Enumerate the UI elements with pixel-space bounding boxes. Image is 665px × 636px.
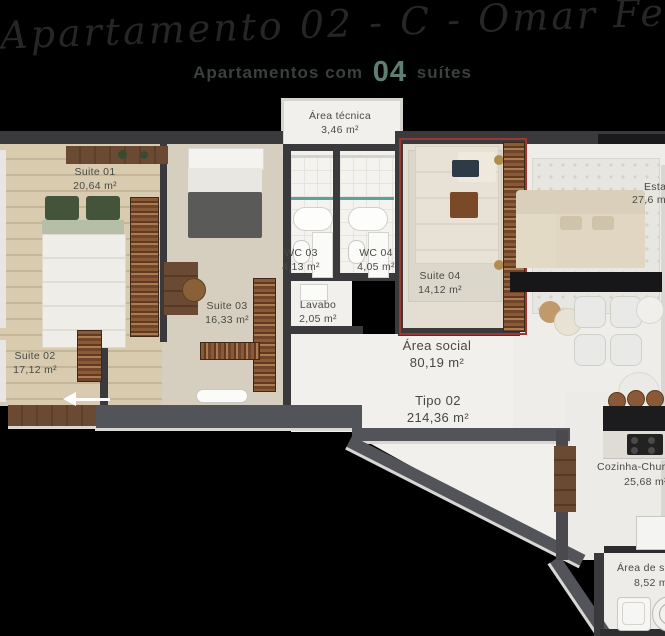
balcony-floor (8, 405, 96, 429)
laundry-cabinet-door (622, 602, 645, 625)
suite03-bed-top (188, 168, 262, 192)
suite01-pillow (45, 196, 79, 220)
counter-dark (603, 406, 665, 431)
round-table (636, 296, 664, 324)
window-suite01 (0, 150, 6, 328)
suite03-bed-blanket (188, 192, 262, 238)
room-label-suite-02: Suite 0217,12 m² (0, 350, 70, 377)
wc03-bathtub (293, 207, 333, 231)
subtitle-number: 04 (373, 56, 407, 88)
subtitle-suffix: suítes (417, 63, 472, 82)
entrance-arrow-shaft (76, 398, 110, 401)
armchair (574, 296, 606, 328)
entrance-arrow-icon (63, 392, 76, 406)
suite02-wardrobe (77, 330, 102, 382)
suite03-door (196, 389, 248, 403)
room-label-estar-name: Estar (644, 181, 665, 195)
tv-panel (598, 134, 665, 144)
kitchen-wood-panel (554, 446, 576, 512)
sofa-chaise (516, 214, 556, 268)
bottom-wall-band-2 (352, 428, 570, 444)
wall-between-wcs (333, 144, 340, 276)
sofa-pillow (592, 216, 614, 230)
suite04-highlight-outline (399, 138, 527, 335)
fridge (636, 516, 665, 550)
top-wall-left (0, 131, 283, 144)
room-label-area-tecnica: Área técnica3,46 m² (300, 110, 380, 137)
burner-icon (648, 437, 655, 444)
floorplan-poster: Apartamento 02 - C - Omar Ferreira Apart… (0, 0, 665, 636)
room-label-wc-04: WC 044,05 m² (346, 247, 406, 274)
script-title: Apartamento 02 - C - Omar Ferreira (0, 0, 665, 58)
bottom-wall-band (95, 405, 360, 431)
room-label-servico-name: Área de serviço (617, 562, 665, 576)
suite03-pillows (188, 148, 264, 170)
armchair (574, 334, 606, 366)
wall-under-lavabo (283, 326, 363, 334)
room-label-cozinha-name: Cozinha-Churrasqueira (597, 461, 665, 475)
burner-icon (631, 437, 638, 444)
armchair (610, 334, 642, 366)
suite03-chair (182, 278, 206, 302)
room-label-suite-01: Suite 0120,64 m² (55, 166, 135, 193)
sofa-pillow (560, 216, 582, 230)
room-label-tipo-02: Tipo 02214,36 m² (390, 393, 486, 427)
subtitle-prefix: Apartamentos com (193, 63, 363, 82)
suite01-pillow (86, 196, 120, 220)
subtitle: Apartamentos com 04 suítes (0, 56, 665, 89)
room-label-lavabo: Lavabo2,05 m² (288, 299, 348, 326)
sofa-back (516, 190, 645, 214)
wc03-shower-glass (291, 197, 333, 200)
plant-icon (118, 150, 127, 159)
suite01-wardrobe (130, 197, 159, 337)
room-label-estar-area: 27,6 m² (632, 194, 665, 208)
room-label-suite-04: Suite 0414,12 m² (400, 270, 480, 297)
wall-under-tecnica (283, 144, 397, 151)
room-label-wc-03: WC 034,13 m² (271, 247, 331, 274)
room-label-area-social: Área social80,19 m² (390, 338, 484, 372)
room-label-cozinha-area: 25,68 m² (624, 476, 665, 490)
wc04-shower-glass (340, 197, 394, 200)
burner-icon (631, 447, 638, 454)
tv-console (510, 272, 662, 292)
room-label-servico-area: 8,52 m² (634, 577, 665, 591)
room-label-suite-03: Suite 0316,33 m² (187, 300, 267, 327)
laundry-left-wall (594, 553, 604, 636)
suite03-wardrobe (253, 278, 276, 392)
suite01-bed-band (42, 220, 124, 234)
wc04-bathtub (348, 207, 388, 231)
burner-icon (648, 447, 655, 454)
suite03-shelf (200, 342, 260, 360)
suite01-headboard-shelf (66, 146, 168, 164)
plant-icon (140, 151, 148, 159)
